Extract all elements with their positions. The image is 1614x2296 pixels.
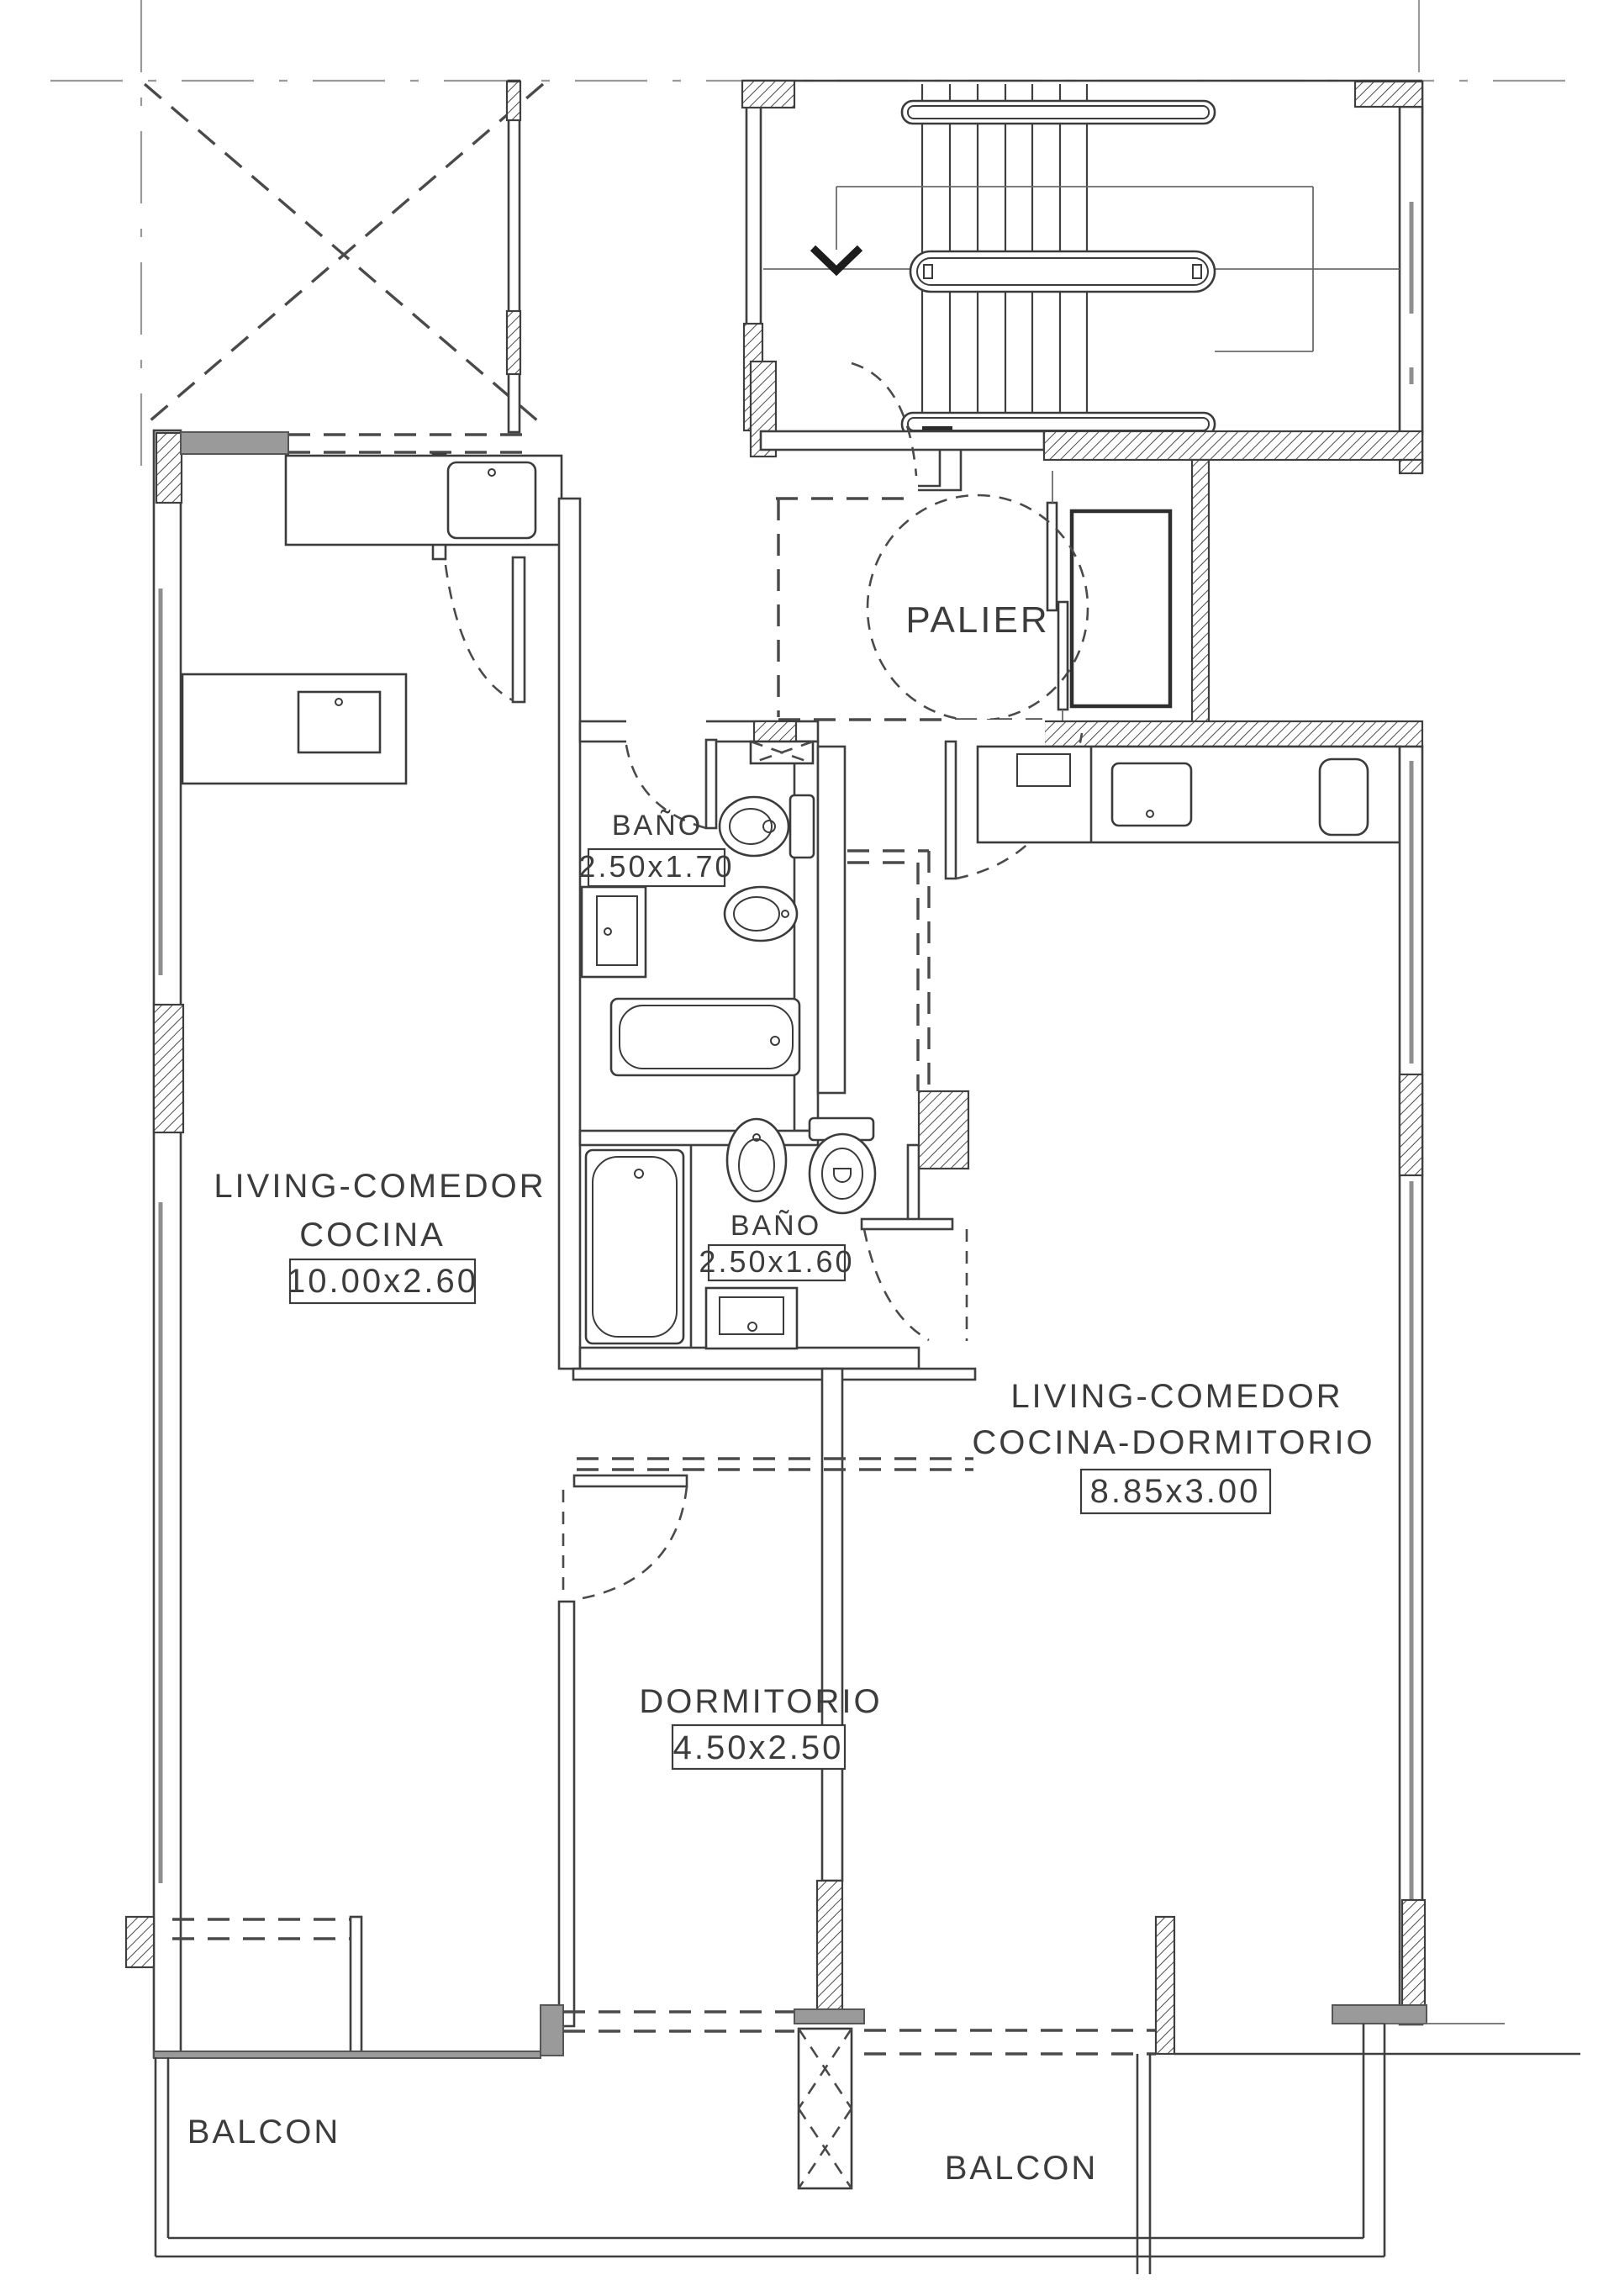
landing-wall [761,431,1044,450]
elevator-shaft-wall [1192,460,1209,748]
door-leaf [862,1219,952,1229]
palier-label: PALIER [905,599,1049,641]
living-right-line1: LIVING-COMEDOR [1010,1378,1342,1415]
kitchen-island [182,674,406,784]
living-right-dims: 8.85x3.00 [1090,1473,1261,1510]
bedroom-right-wall [822,1369,842,1881]
living-left-line1: LIVING-COMEDOR [214,1168,546,1205]
cooktop-icon [298,692,380,752]
bedroom-label: DORMITORIO [639,1683,882,1720]
door-leaf [706,740,716,828]
sink-vanity-icon [706,1288,797,1349]
vent-duct [751,742,813,763]
kitchen-counter-right [978,747,1400,842]
floor-plan-page: PALIER [0,0,1614,2296]
bathtub-icon [586,1150,683,1343]
bath2-right-wall [908,1145,919,1222]
left-top-window [288,435,532,452]
balcony-right-label: BALCON [945,2150,1099,2187]
bath1-label: BAÑO [612,810,703,842]
apartment-left: LIVING-COMEDOR COCINA 10.00x2.60 [126,81,580,2058]
bedroom: DORMITORIO 4.50x2.50 [541,1369,975,2056]
bedroom-dims: 4.50x2.50 [673,1729,844,1766]
bath2-bottom-wall [580,1348,919,1369]
bathroom-2: BAÑO 2.50x1.60 [580,1118,967,1369]
stair-left-wall [746,107,761,325]
stairwell [742,81,1422,490]
apartment-right: LIVING-COMEDOR COCINA-DORMITORIO 8.85x3.… [818,720,1580,2054]
balcony-bottom-railing [156,2238,1385,2256]
appliance-icon [1320,759,1368,835]
floor-plan-drawing: PALIER [0,0,1614,2296]
door-leaf [513,557,525,702]
door-leaf [946,742,956,879]
elevator [1047,460,1209,748]
living-left-line2: COCINA [299,1217,446,1254]
kitchen-sink-icon [448,462,535,538]
palier: PALIER [776,495,1088,720]
balcony-right-railing [1137,2024,1385,2274]
kitchen-counter-left [286,456,562,545]
right-top-wall [1044,721,1422,747]
ceiling-projection [847,851,929,1091]
balcony-left-label: BALCON [187,2114,341,2151]
toilet-icon [720,795,814,858]
left-interior-wall [559,499,580,1369]
grid-lines [50,0,1580,483]
bathtub-icon [611,999,799,1075]
bedroom-top-wall [573,1369,975,1380]
bedroom-left-wall [559,1602,574,2026]
bidet-icon [725,887,797,941]
bath1-dims: 2.50x1.70 [578,849,734,884]
elevator-car [1072,511,1170,706]
void-wall [509,81,520,432]
door-leaf [574,1475,687,1486]
balcony-left-railing [156,2057,168,2256]
stair-direction-arrow-icon [813,248,860,271]
bedroom-door [563,1475,687,1598]
left-top-wall [181,432,288,454]
left-outer-wall [154,430,181,2057]
bath2-label: BAÑO [731,1210,821,1242]
sink-vanity-icon [582,887,646,977]
bathroom-1: BAÑO 2.50x1.70 [578,720,818,1145]
living-left-dims: 10.00x2.60 [287,1263,478,1300]
unit-divider-wall [818,747,845,1093]
bidet-icon [727,1119,786,1201]
bath2-dims: 2.50x1.60 [699,1244,854,1279]
balcony-divider-pillar [799,2029,852,2188]
right-balcony-window [864,1917,1580,2054]
elevator-doors [1047,471,1068,740]
bath2-door [862,1219,967,1341]
closet-projection [577,1459,973,1470]
balconies: BALCON BALCON [156,2024,1385,2274]
stair-handrails [902,101,1215,435]
left-balcony-window [154,1917,541,2058]
stair-bottom-wall [1044,431,1422,460]
void-projection-x [145,84,543,425]
living-right-line2: COCINA-DORMITORIO [972,1424,1374,1461]
toilet-icon [810,1118,875,1213]
